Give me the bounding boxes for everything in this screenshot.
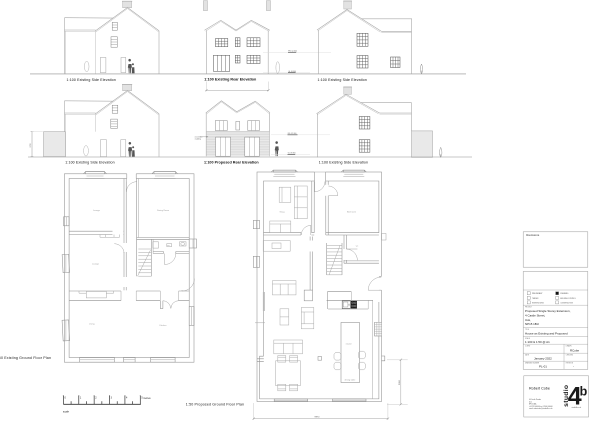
- svg-text:1:50 Proposed Ground Floor Pla: 1:50 Proposed Ground Floor Plan: [186, 402, 244, 406]
- svg-text:BUILDING CONTROL: BUILDING CONTROL: [560, 298, 575, 300]
- svg-text:Lounge: Lounge: [93, 210, 101, 212]
- svg-text:Living: Living: [89, 324, 95, 326]
- svg-text:Lounge: Lounge: [92, 264, 100, 266]
- svg-text:1:100 Existing Rear Elevation: 1:100 Existing Rear Elevation: [204, 78, 257, 82]
- svg-text:2700: 2700: [30, 144, 32, 148]
- svg-text:b: b: [580, 384, 588, 398]
- svg-text:Usk: Usk: [529, 401, 532, 403]
- svg-text:CLIENT: CLIENT: [525, 346, 530, 348]
- svg-text:Revisions: Revisions: [526, 233, 540, 237]
- svg-text:Bed room: Bed room: [347, 211, 356, 214]
- svg-text:-: -: [573, 364, 574, 368]
- svg-text:FFL 52.300: FFL 52.300: [288, 133, 297, 135]
- svg-text:WORKING DWG: WORKING DWG: [532, 302, 545, 304]
- svg-text:4 Castle Street,: 4 Castle Street,: [525, 314, 545, 318]
- svg-text:9970: 9970: [315, 417, 321, 419]
- svg-text:metres: metres: [143, 397, 151, 400]
- svg-text:1:100 Existing Side Elevation: 1:100 Existing Side Elevation: [318, 78, 367, 82]
- svg-text:GL 49.800: GL 49.800: [288, 71, 296, 73]
- svg-text:GL 49.800: GL 49.800: [288, 153, 296, 155]
- svg-text:Kitchen: Kitchen: [160, 324, 168, 327]
- svg-text:5010: 5010: [399, 379, 401, 385]
- svg-text:RCobe: RCobe: [570, 348, 580, 352]
- svg-text:FFL 52.300: FFL 52.300: [288, 51, 297, 53]
- svg-text:wc: wc: [167, 245, 170, 247]
- svg-text:1:100 & 1:50 @ A1: 1:100 & 1:50 @ A1: [525, 340, 550, 344]
- svg-text:House as Existing and Proposed: House as Existing and Proposed: [525, 331, 568, 335]
- svg-text:January 2022: January 2022: [534, 357, 552, 361]
- svg-text:1:100 Existing Side Elevation: 1:100 Existing Side Elevation: [319, 161, 368, 165]
- svg-text:CHECKED: CHECKED: [566, 355, 574, 357]
- svg-text:Proposed Single Storey Extensi: Proposed Single Storey Extension,: [525, 309, 571, 313]
- svg-text:1:100 Proposed Rear Elevation: 1:100 Proposed Rear Elevation: [204, 160, 259, 164]
- svg-text:island: island: [346, 344, 352, 346]
- svg-text:CONSTRUCTION: CONSTRUCTION: [560, 302, 572, 304]
- svg-text:NP15 1BU: NP15 1BU: [525, 322, 539, 326]
- svg-text:cladding: cladding: [195, 139, 201, 141]
- svg-text:wc: wc: [356, 245, 359, 247]
- svg-text:PL-01: PL-01: [539, 365, 547, 369]
- svg-text:1:50 Existing Ground Floor Pla: 1:50 Existing Ground Floor Plan: [0, 356, 51, 360]
- svg-text:1:100 Existing Side Elevation: 1:100 Existing Side Elevation: [65, 161, 114, 165]
- svg-text:scale: scale: [63, 410, 70, 414]
- svg-text:Snug: Snug: [280, 212, 286, 214]
- svg-text:1:100 Existing Side Elevation: 1:100 Existing Side Elevation: [67, 78, 116, 82]
- svg-text:dining table: dining table: [345, 379, 356, 382]
- svg-text:REVISION: REVISION: [566, 363, 573, 365]
- svg-text:Robert Cobe: Robert Cobe: [529, 386, 550, 390]
- svg-text:Dining Room: Dining Room: [157, 210, 169, 212]
- svg-text:TENDER: TENDER: [532, 298, 539, 300]
